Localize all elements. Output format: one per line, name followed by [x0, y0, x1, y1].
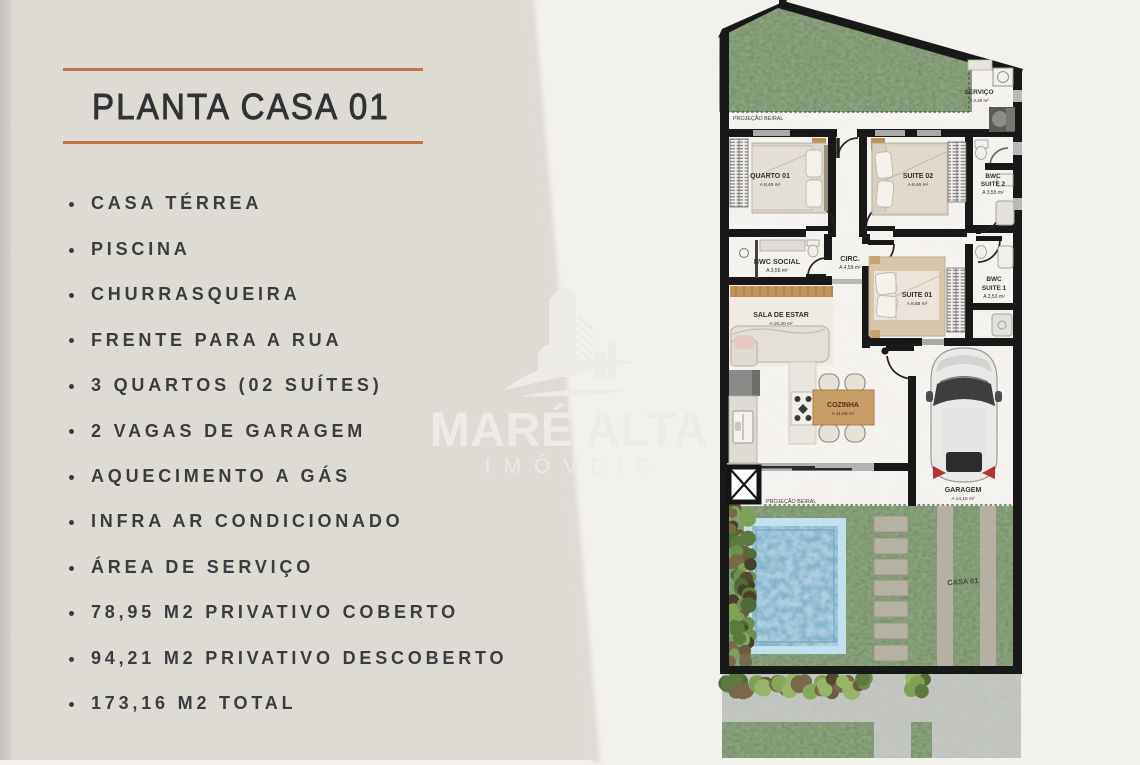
- svg-text:A 11,66 m²: A 11,66 m²: [832, 411, 855, 417]
- svg-text:SALA DE ESTAR: SALA DE ESTAR: [753, 312, 809, 319]
- svg-text:SUITE 01: SUITE 01: [902, 292, 932, 299]
- svg-text:BWC: BWC: [986, 276, 1002, 283]
- svg-text:BWC SOCIAL: BWC SOCIAL: [754, 257, 801, 266]
- svg-text:CIRC.: CIRC.: [840, 254, 860, 263]
- svg-text:A 8,88 m²: A 8,88 m²: [907, 301, 928, 307]
- svg-text:SUITE 02: SUITE 02: [903, 173, 933, 180]
- svg-text:A 3,56 m²: A 3,56 m²: [766, 268, 788, 274]
- svg-text:COZINHA: COZINHA: [827, 402, 859, 409]
- svg-text:GARAGEM: GARAGEM: [945, 487, 982, 494]
- svg-text:PROJEÇÃO BEIRAL: PROJEÇÃO BEIRAL: [766, 498, 816, 505]
- svg-text:A 14,19 m²: A 14,19 m²: [951, 496, 975, 502]
- svg-text:QUARTO 01: QUARTO 01: [750, 173, 790, 180]
- svg-text:A 3,48 m²: A 3,48 m²: [969, 98, 989, 103]
- svg-text:A 16,20 m²: A 16,20 m²: [769, 321, 793, 327]
- svg-text:SUITE 2: SUITE 2: [981, 181, 1006, 188]
- svg-text:SERVIÇO: SERVIÇO: [964, 89, 993, 96]
- svg-text:SUITE 1: SUITE 1: [982, 285, 1007, 292]
- svg-text:PROJEÇÃO BEIRAL: PROJEÇÃO BEIRAL: [733, 115, 783, 122]
- svg-text:A 4,59 m²: A 4,59 m²: [839, 265, 861, 271]
- svg-text:A 3,53 m²: A 3,53 m²: [983, 294, 1005, 300]
- svg-text:A 3,55 m²: A 3,55 m²: [982, 190, 1004, 196]
- svg-text:A 8,46 m²: A 8,46 m²: [908, 182, 929, 188]
- svg-text:BWC: BWC: [985, 173, 1001, 180]
- svg-text:A 8,45 m²: A 8,45 m²: [760, 182, 781, 188]
